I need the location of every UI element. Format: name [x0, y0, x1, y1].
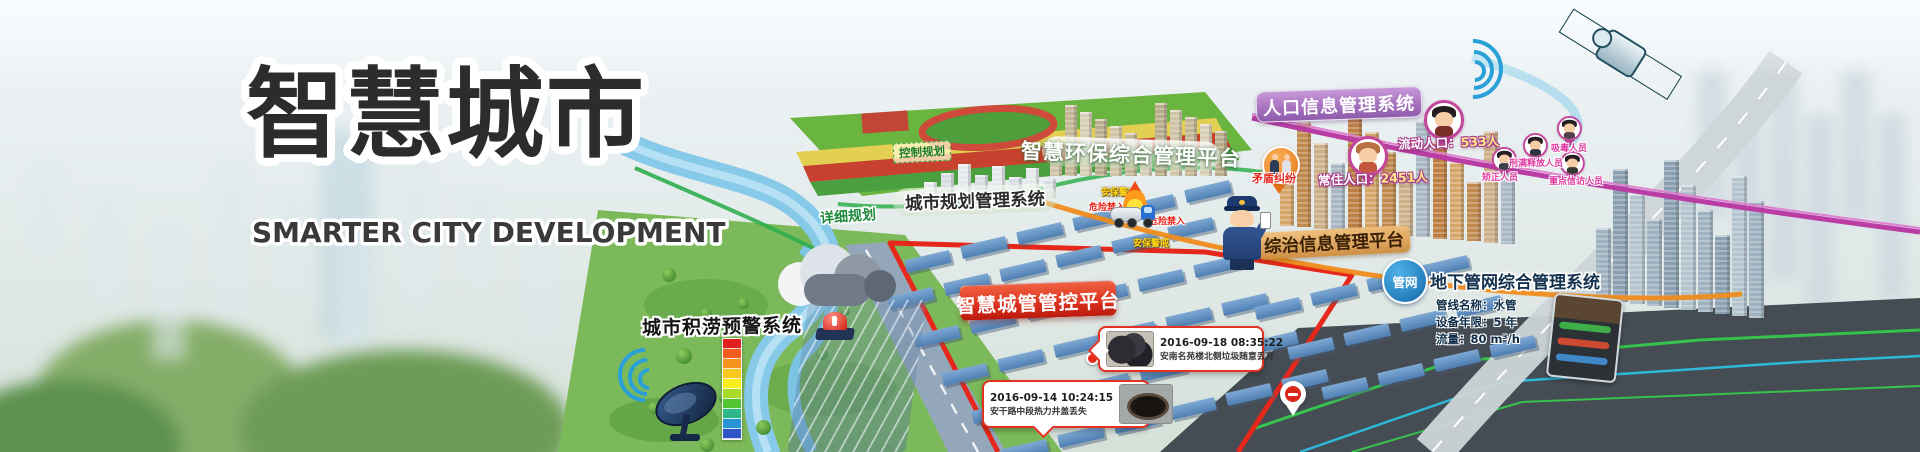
hazard-truck-icon [1110, 203, 1158, 227]
event-desc: 安南名苑楼北侧垃圾随意丢弃 [1160, 351, 1283, 363]
resident-population-label: 常住人口：2451人 [1318, 166, 1428, 189]
pipeline-details: 管线名称：水管 设备年限：5 年 流量：80 m³/h [1436, 297, 1520, 348]
rainfall-legend [722, 338, 742, 440]
label-env-platform[interactable]: 智慧环保综合管理平台 [1042, 136, 1221, 171]
event-desc: 安干路中段热力井盖丢失 [990, 406, 1113, 418]
floating-population-label: 流动人口：533人 [1398, 130, 1500, 153]
smart-city-banner: 智慧环保综合管理平台 城市规划管理系统 人口信息管理系统 智慧城管管控平台 综治… [0, 0, 1920, 452]
label-flood-warning-system[interactable]: 城市积涝预警系统 [642, 311, 802, 341]
event-time: 2016-09-14 10:24:15 [990, 391, 1113, 406]
person-pin-icon [1523, 133, 1548, 158]
event-time: 2016-09-18 08:35:22 [1160, 336, 1283, 351]
drug-person-label: 吸毒人员 [1551, 141, 1587, 154]
event-callout-manhole[interactable]: 2016-09-14 10:24:15 安干路中段热力井盖丢失 [982, 380, 1150, 428]
pipeline-detail-age: 设备年限：5 年 [1436, 314, 1520, 331]
person-pin-icon [1557, 116, 1582, 141]
correction-person-label: 矫正人员 [1482, 170, 1518, 183]
event-text: 2016-09-18 08:35:22 安南名苑楼北侧垃圾随意丢弃 [1160, 336, 1283, 363]
alarm-siren-icon [816, 312, 858, 340]
floating-population-value: 533人 [1460, 133, 1499, 149]
pipeline-badge-icon[interactable]: 管网 [1382, 258, 1428, 304]
resident-population-text: 常住人口： [1318, 171, 1381, 188]
event-callout-trash[interactable]: 2016-09-18 08:35:22 安南名苑楼北侧垃圾随意丢弃 [1098, 326, 1264, 372]
trash-photo [1106, 331, 1154, 367]
pipeline-detail-flow: 流量：80 m³/h [1436, 331, 1520, 348]
label-population-system[interactable]: 人口信息管理系统 [1256, 86, 1423, 123]
tag-control-planning: 控制规划 [893, 140, 952, 163]
manhole-photo [1119, 384, 1173, 424]
released-person-label: 刑满释放人员 [1509, 156, 1563, 169]
storm-cloud-icon [778, 240, 896, 312]
pipeline-photo [1546, 293, 1624, 384]
tag-detail-planning: 详细规划 [819, 204, 876, 228]
policeman-icon [1218, 196, 1266, 270]
resident-population-value: 2451人 [1380, 169, 1428, 186]
satellite-signal-arcs-icon [1438, 34, 1500, 96]
pipeline-detail-name: 管线名称：水管 [1436, 297, 1520, 314]
event-text: 2016-09-14 10:24:15 安干路中段热力井盖丢失 [990, 391, 1113, 418]
person-pin-icon [1560, 151, 1585, 176]
no-entry-pin[interactable] [1280, 381, 1306, 423]
satellite-dish-icon [648, 382, 722, 446]
hazard-tag-guard-2: 安保警戒 [1133, 236, 1169, 249]
floating-population-text: 流动人口： [1398, 135, 1461, 152]
label-planning-system[interactable]: 城市规划管理系统 [893, 183, 1058, 217]
petition-person-label: 重点信访人员 [1549, 174, 1603, 187]
no-entry-icon [1285, 386, 1301, 402]
label-pipeline-system[interactable]: 地下管网综合管理系统 [1430, 268, 1600, 293]
label-cityguard-platform[interactable]: 智慧城管管控平台 [959, 280, 1116, 320]
dispute-label: 矛盾纠纷 [1252, 170, 1296, 186]
